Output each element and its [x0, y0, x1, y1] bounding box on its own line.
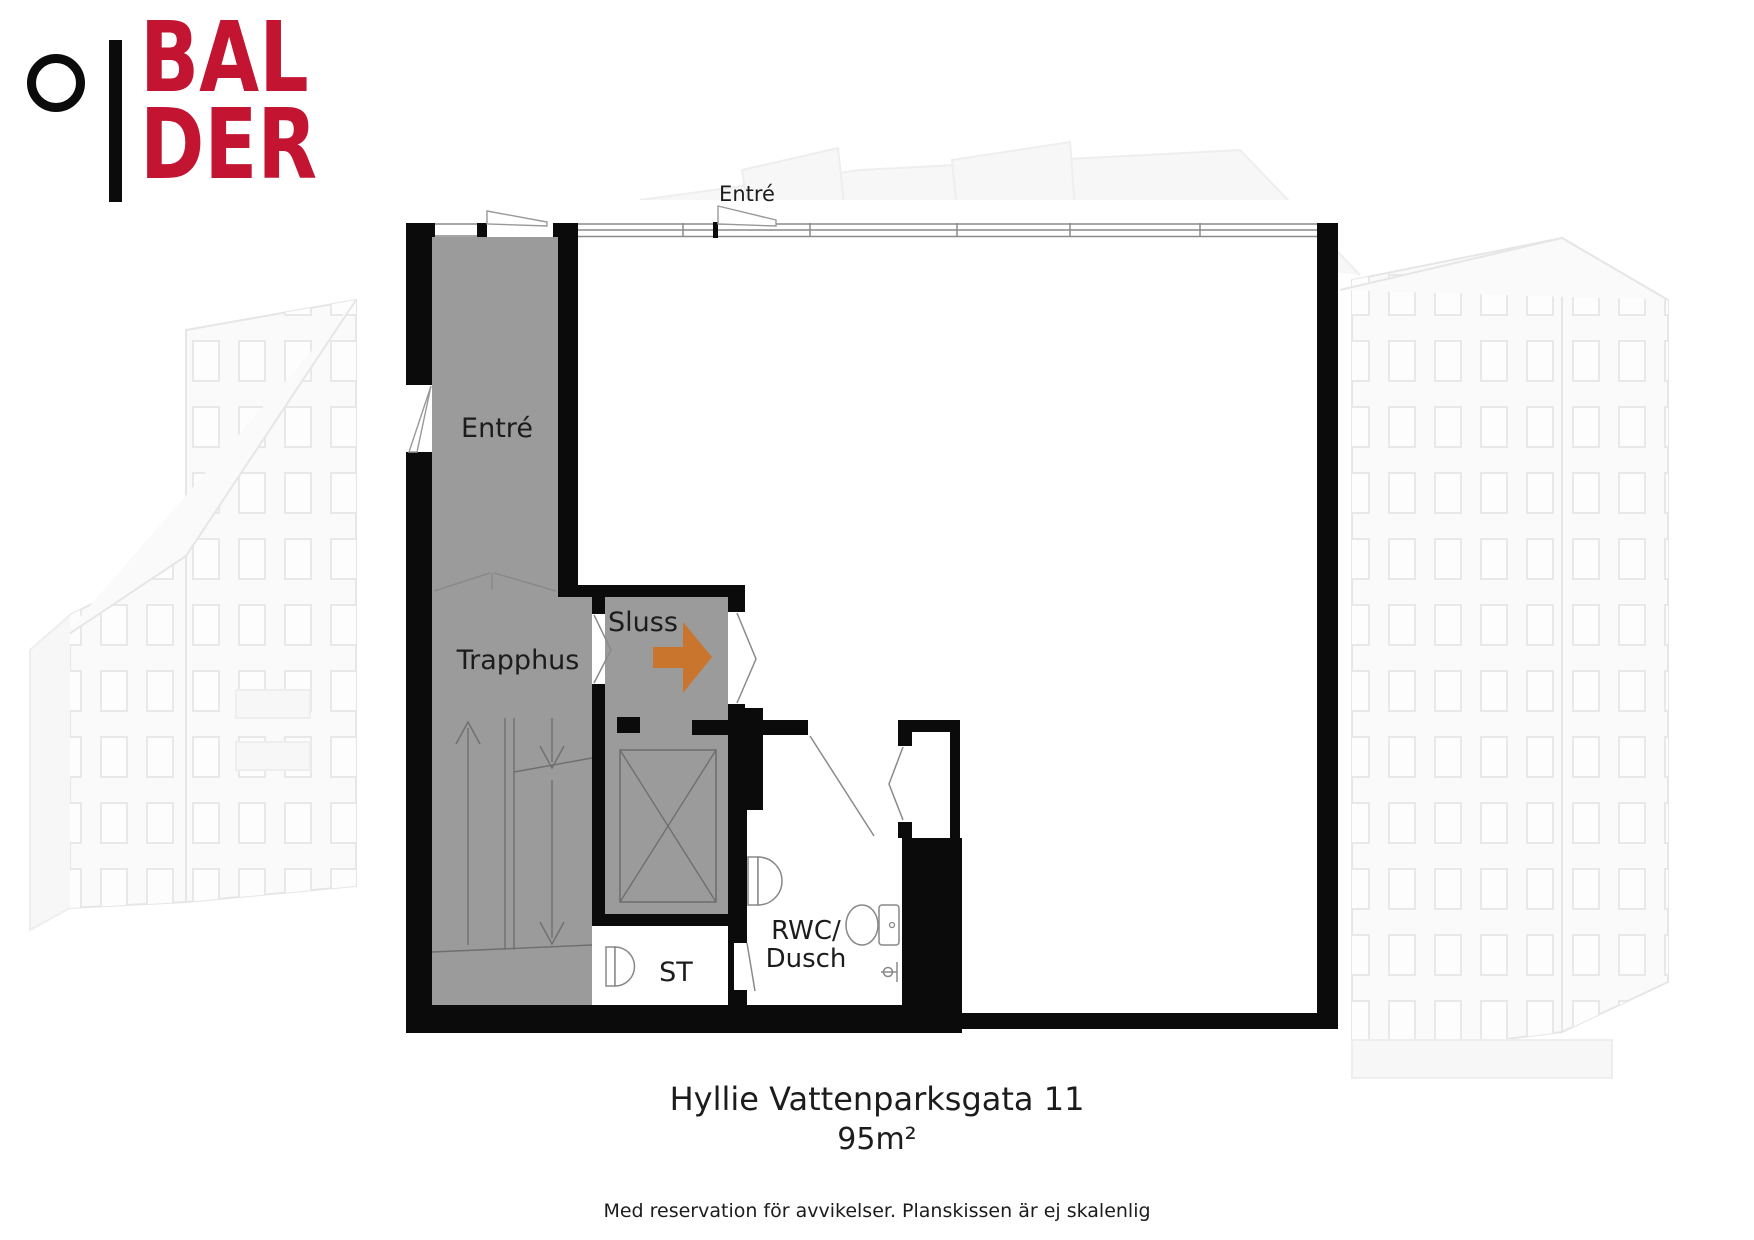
label-rwc-line2: Dusch — [766, 944, 847, 974]
label-entre-hall: Entré — [461, 413, 533, 444]
background-sketch-left — [30, 300, 356, 930]
label-st: ST — [659, 957, 693, 988]
disclaimer-text: Med reservation för avvikelser. Planskis… — [0, 1200, 1754, 1222]
label-rwc-line1: RWC/ — [771, 916, 841, 946]
label-entre-top: Entré — [719, 182, 775, 206]
address-title: Hyllie Vattenparksgata 11 — [0, 1080, 1754, 1118]
room-entre-hall — [432, 237, 578, 586]
label-sluss: Sluss — [608, 607, 678, 638]
toilet-icon — [846, 905, 899, 945]
label-trapphus: Trapphus — [456, 645, 580, 676]
page: BALDER — [0, 0, 1754, 1240]
entry-door-hinge — [713, 222, 718, 238]
area-size: 95m² — [0, 1122, 1754, 1157]
floorplan: Entré Entré Trapphus Sluss ST RWC/ Dusch — [0, 0, 1754, 1240]
